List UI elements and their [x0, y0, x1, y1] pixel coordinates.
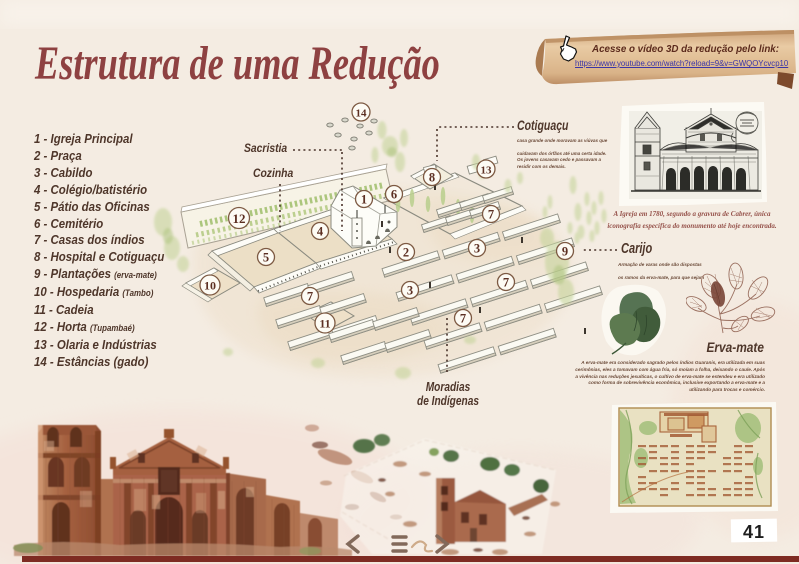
svg-text:3: 3	[474, 242, 480, 256]
svg-text:7: 7	[503, 276, 509, 290]
svg-text:9: 9	[562, 245, 568, 259]
svg-text:5: 5	[263, 251, 269, 265]
svg-text:1: 1	[361, 193, 367, 207]
svg-text:11: 11	[319, 317, 330, 331]
svg-text:7: 7	[460, 312, 466, 326]
svg-text:4: 4	[317, 225, 324, 239]
svg-text:7: 7	[307, 290, 313, 304]
svg-text:3: 3	[407, 284, 413, 298]
svg-text:2: 2	[403, 246, 409, 260]
svg-text:14: 14	[356, 108, 368, 120]
svg-text:12: 12	[233, 211, 246, 226]
svg-text:8: 8	[429, 171, 435, 185]
svg-text:10: 10	[204, 279, 216, 293]
svg-text:7: 7	[488, 208, 494, 222]
svg-text:6: 6	[391, 188, 397, 202]
svg-text:13: 13	[481, 165, 493, 177]
